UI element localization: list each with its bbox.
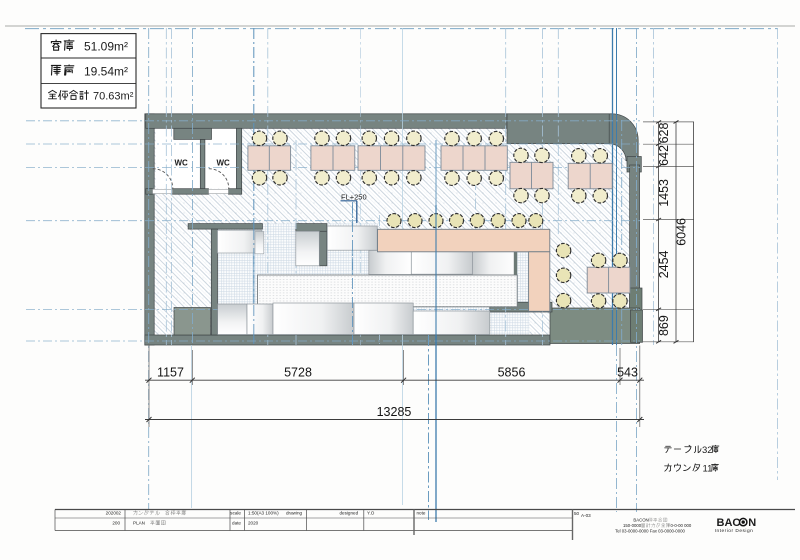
svg-text:150-0000: 150-0000	[623, 523, 642, 528]
svg-text:642: 642	[657, 145, 671, 166]
svg-text:date: date	[232, 521, 241, 526]
svg-text:WC: WC	[175, 159, 189, 168]
svg-text:2020: 2020	[248, 521, 259, 526]
svg-text:0-0-00 000: 0-0-00 000	[671, 523, 692, 528]
svg-text:50: 50	[574, 511, 580, 516]
svg-text:869: 869	[657, 315, 671, 336]
svg-text:A-03: A-03	[581, 513, 591, 518]
svg-text:5856: 5856	[498, 366, 526, 380]
svg-text:designed: designed	[340, 511, 359, 516]
svg-text:drawing: drawing	[286, 511, 303, 516]
svg-text:N: N	[748, 517, 756, 529]
svg-text:543: 543	[617, 366, 638, 380]
svg-text:1157: 1157	[157, 366, 184, 380]
svg-text:BACON: BACON	[633, 518, 648, 523]
svg-text:6046: 6046	[675, 218, 689, 246]
svg-text:70.63m²: 70.63m²	[93, 91, 134, 103]
svg-text:5728: 5728	[284, 366, 312, 380]
svg-text:scale: scale	[230, 511, 241, 516]
svg-text:1:50(A3 100%): 1:50(A3 100%)	[248, 511, 279, 516]
svg-text:13285: 13285	[377, 405, 412, 419]
svg-text:WC: WC	[217, 159, 231, 168]
svg-text:note: note	[417, 511, 426, 516]
svg-text:11: 11	[703, 464, 713, 475]
svg-text:Tel 03-0000-0000 Fax 03-0000-: Tel 03-0000-0000 Fax 03-0000-0000	[615, 529, 685, 534]
svg-text:BAC: BAC	[717, 517, 741, 529]
svg-text:200: 200	[112, 521, 120, 526]
svg-text:PLAN: PLAN	[133, 521, 145, 526]
svg-text:1453: 1453	[657, 179, 671, 207]
svg-text:Interior Design: Interior Design	[715, 528, 754, 534]
svg-text:19.54m²: 19.54m²	[84, 65, 128, 79]
svg-text:Y.O: Y.O	[367, 511, 375, 516]
svg-text:2454: 2454	[657, 250, 671, 278]
svg-text:32: 32	[702, 445, 713, 456]
svg-text:628: 628	[657, 123, 671, 144]
svg-text:202002: 202002	[106, 511, 122, 516]
svg-text:FL+250: FL+250	[341, 192, 367, 201]
svg-text:51.09m²: 51.09m²	[84, 40, 128, 54]
